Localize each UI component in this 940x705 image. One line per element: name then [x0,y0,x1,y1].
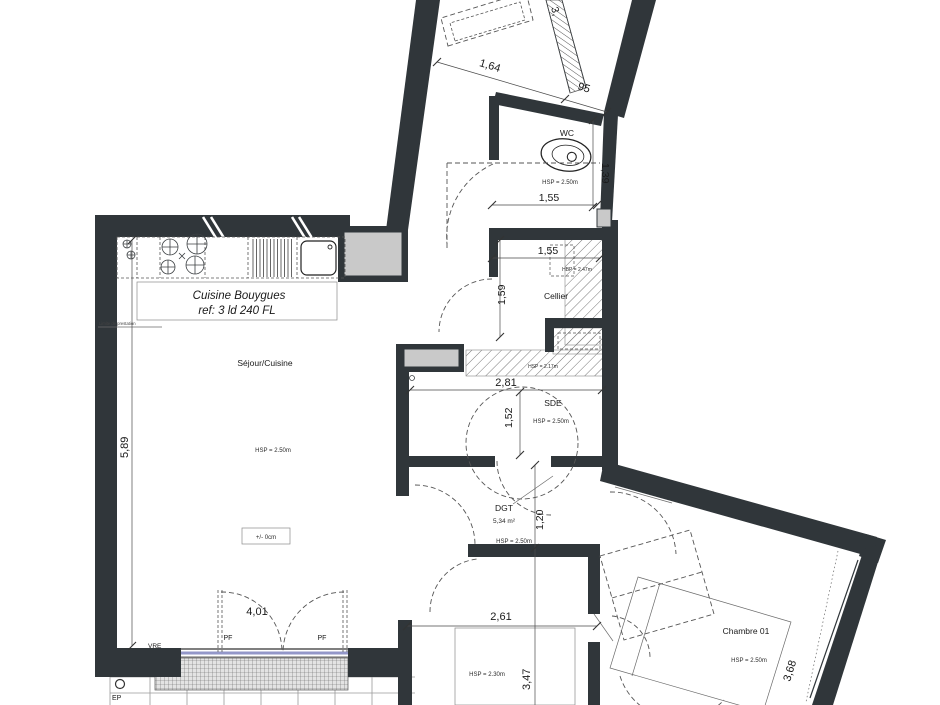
floor-plan: 1,64 95 3, WC HSP = 2.50m 1,55 1,39 1,55… [0,0,940,705]
sejour-door-swing [415,485,475,545]
soffit-height: HSP = 2.17m [528,364,558,370]
room-label-wc: WC [560,128,574,138]
dim-cellier-depth: 1,59 [496,284,508,305]
room-label-chambre1: Chambre 01 [723,626,770,636]
kitchen-title: Cuisine Bouygues [193,290,286,302]
french-door-swing-right [283,592,344,652]
room-label-cellier: Cellier [544,291,568,301]
dim-dgt-depth: 1,20 [534,509,546,530]
duct-shaft [344,232,402,276]
cellier-low-height: HBP = 2.47m [562,267,592,273]
counter-block [404,349,459,367]
dim-lower-room-depth: 3,47 [521,669,533,690]
room-label-sde: SDE [544,398,562,408]
chambre-wardrobe [600,530,714,640]
dim-wc-width: 1,55 [539,192,560,204]
sde-soffit-hatch [466,350,604,376]
dgt-leader-line [513,476,553,504]
vre-label: VRE [148,643,162,650]
dim-wc-depth: 1,39 [599,163,611,184]
ep-label: EP [112,695,122,702]
kitchen-limit-note: Limite de prestation [99,321,136,326]
bed-outline [610,577,791,705]
dim-entry-depth: 95 [576,81,591,96]
hob-symbol [123,234,207,274]
sde-height: HSP = 2.50m [533,419,569,425]
chambre1-height: HSP = 2.50m [731,658,767,664]
sink-symbol [301,241,336,275]
dim-entry-width: 1,64 [478,57,502,75]
floor-plan-drawing: 1,64 95 3, WC HSP = 2.50m 1,55 1,39 1,55… [0,0,940,705]
dim-sde-height: 1,52 [503,407,515,428]
french-door-leaves [218,590,347,652]
entry-door-swing [447,164,493,244]
cellier-door-swing [439,279,492,332]
pf-label-left: PF [224,635,233,642]
dim-sde-width: 2,81 [495,377,516,389]
window-and-grate [155,649,348,690]
small-shaft [597,209,611,227]
dim-sejour-depth: 5,89 [119,437,131,458]
room-label-dgt: DGT [495,503,513,513]
lower-room-outline [455,628,575,705]
dim-corridor-width: 2,61 [490,611,511,623]
ep-drain-symbol [116,680,125,689]
wc-height: HSP = 2.50m [542,180,578,186]
kitchen-ref: ref: 3 ld 240 FL [198,305,275,317]
sejour-height: HSP = 2.50m [255,448,291,454]
dgt-height: HSP = 2.50m [496,539,532,545]
lower-room-height: HSP = 2.30m [469,672,505,678]
dim-window-width: 4,01 [246,606,267,618]
french-door-swing-left [221,592,282,652]
dishwasher-symbol [250,239,294,277]
door-leaf [594,614,613,641]
balcony-grate [155,658,348,690]
dim-cellier-width: 1,55 [538,245,559,257]
toilet-symbol [539,136,593,175]
corridor-door-swing [430,559,477,612]
dgt-area: 5,34 m² [493,518,516,525]
dim-chambre-depth: 3,68 [781,659,799,683]
level-marker: +/- 0cm [256,535,276,541]
room-label-sejour: Séjour/Cuisine [237,358,293,368]
pf-label-right: PF [318,635,327,642]
dimension-lines [128,58,611,705]
